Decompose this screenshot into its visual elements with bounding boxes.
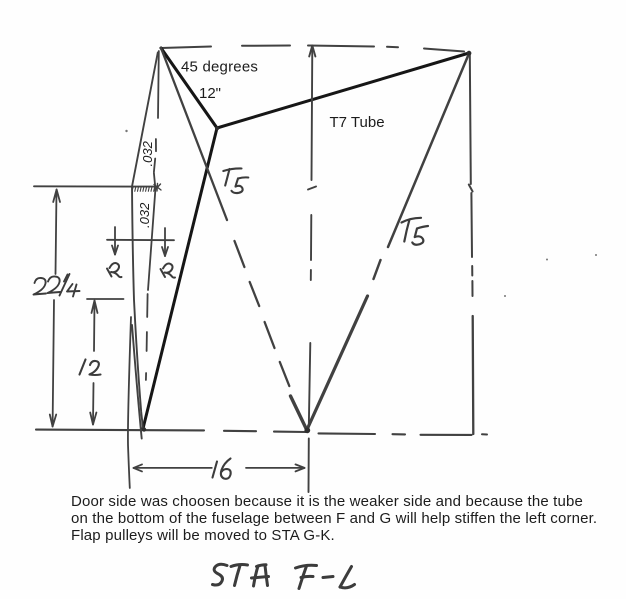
svg-text:Flap pulleys will be moved to: Flap pulleys will be moved to STA G-K. — [71, 527, 335, 544]
svg-text:.032: .032 — [137, 202, 152, 228]
svg-text:Door side was choosen because: Door side was choosen because it is the … — [71, 493, 583, 510]
svg-text:45 degrees: 45 degrees — [181, 59, 258, 76]
svg-text:12": 12" — [199, 85, 221, 102]
svg-text:T7 Tube: T7 Tube — [330, 114, 385, 131]
svg-text:.032: .032 — [140, 140, 155, 166]
svg-text:on the bottom of the fuselage: on the bottom of the fuselage between F … — [71, 510, 597, 527]
